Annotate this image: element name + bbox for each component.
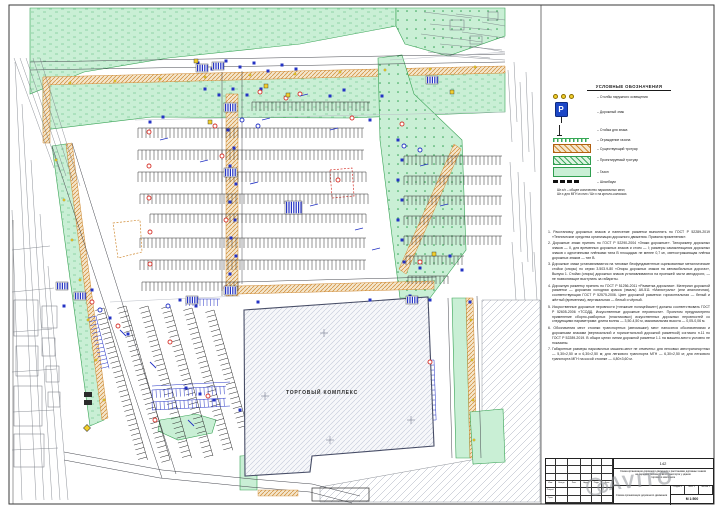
revision-table-cell bbox=[556, 474, 568, 481]
revision-table-cell: Дата bbox=[602, 481, 613, 488]
legend-item: – Проектируемый тротуар bbox=[553, 156, 711, 165]
revision-table-cell bbox=[568, 496, 581, 503]
title-block-main: 142 Схема организации дорожного движения… bbox=[613, 459, 713, 503]
revision-table-cell: Лист bbox=[568, 481, 581, 488]
revision-table-cell bbox=[568, 466, 581, 473]
revision-table-cell bbox=[592, 496, 602, 503]
legend-item-label: – Газон bbox=[593, 170, 609, 174]
revision-table-cell bbox=[592, 466, 602, 473]
title-block-revision-table: Изм.Кол.учЛист№док.Подп.ДатаРазраб.Пров. bbox=[546, 459, 614, 503]
revision-table-cell bbox=[592, 459, 602, 466]
revision-table-cell: Изм. bbox=[546, 481, 556, 488]
revision-table-cell: №док. bbox=[581, 481, 592, 488]
swN-symbol-icon bbox=[553, 156, 593, 165]
legend-item: – Газон bbox=[553, 167, 711, 177]
revision-table-cell bbox=[568, 474, 581, 481]
revision-table-cell bbox=[602, 459, 613, 466]
legend-note-line: Шт.х для МГН из них / Шт.х на кресло-кол… bbox=[557, 192, 711, 196]
legend-item-label: – Столбы наружного освещения bbox=[593, 95, 648, 99]
dots-symbol-icon bbox=[553, 94, 593, 99]
legend-item: – Ограждение газона bbox=[553, 138, 711, 142]
legend-items: – Столбы наружного освещенияP– Дорожный … bbox=[547, 94, 711, 184]
note-paragraph: 7. Габаритные размеры парковочных машино… bbox=[548, 347, 710, 362]
revision-table-cell bbox=[556, 466, 568, 473]
note-paragraph: 3. Дорожные знаки устанавливаются на тип… bbox=[548, 262, 710, 282]
revision-table-cell: Подп. bbox=[592, 481, 602, 488]
title-block-bottom: Схема организации дорожного движения Ста… bbox=[613, 486, 713, 505]
revision-table-cell bbox=[581, 488, 592, 495]
legend-item-label: – Стойка для знака bbox=[593, 128, 627, 132]
note-paragraph: 4. Дорожную разметку принять по ГОСТ Р 5… bbox=[548, 284, 710, 304]
revision-table-cell bbox=[602, 488, 613, 495]
revision-table-cell bbox=[602, 474, 613, 481]
general-notes: 1. Расстановку дорожных знаков и нанесен… bbox=[548, 230, 710, 363]
fence-symbol-icon bbox=[553, 138, 593, 142]
revision-table-cell bbox=[568, 488, 581, 495]
revision-table-cell bbox=[556, 459, 568, 466]
drawing-sheet: ТОРГОВЫЙ КОМПЛЕКС УСЛОВНЫЕ ОБОЗНАЧЕНИЯ –… bbox=[0, 0, 720, 511]
legend-item-label: – Проектируемый тротуар bbox=[593, 158, 638, 162]
revision-table-cell: Разраб. bbox=[546, 488, 556, 495]
revision-table-cell bbox=[592, 474, 602, 481]
revision-table-cell bbox=[592, 488, 602, 495]
revision-table-cell bbox=[556, 496, 568, 503]
note-paragraph: 2. Дорожные знаки принять по ГОСТ Р 5229… bbox=[548, 241, 710, 261]
building-label: ТОРГОВЫЙ КОМПЛЕКС bbox=[286, 388, 358, 396]
revision-table-cell bbox=[581, 466, 592, 473]
barrier-symbol-icon bbox=[553, 180, 593, 183]
revision-table-cell bbox=[546, 466, 556, 473]
drawing-scale: М 1:500 bbox=[671, 494, 713, 505]
post-symbol-icon bbox=[553, 125, 593, 135]
psign-symbol-icon: P bbox=[553, 102, 593, 123]
revision-table-cell bbox=[602, 466, 613, 473]
revision-table-cell bbox=[568, 459, 581, 466]
document-number: 142 bbox=[613, 459, 713, 469]
revision-table-cell bbox=[546, 459, 556, 466]
revision-table-cell: Кол.уч bbox=[556, 481, 568, 488]
swE-symbol-icon bbox=[553, 144, 593, 153]
revision-table-cell bbox=[581, 474, 592, 481]
note-paragraph: 1. Расстановку дорожных знаков и нанесен… bbox=[548, 230, 710, 240]
legend-item: – Стойка для знака bbox=[553, 125, 711, 135]
legend-item: – Существующий тротуар bbox=[553, 144, 711, 153]
title-block: Изм.Кол.учЛист№док.Подп.ДатаРазраб.Пров.… bbox=[545, 458, 714, 504]
legend-note: Шт.х/х – общее количество парковочных ме… bbox=[557, 188, 711, 196]
revision-table-cell bbox=[546, 474, 556, 481]
building-footprint bbox=[244, 297, 434, 476]
legend-item: – Столбы наружного освещения bbox=[553, 94, 711, 99]
legend-item-label: – Шлагбаум bbox=[593, 180, 616, 184]
legend-item-label: – Дорожный знак bbox=[593, 110, 624, 114]
revision-table-cell bbox=[581, 496, 592, 503]
project-description-line: торгового комплекса bbox=[613, 476, 713, 479]
legend: УСЛОВНЫЕ ОБОЗНАЧЕНИЯ – Столбы наружного … bbox=[547, 84, 711, 196]
stage-cell: Листов 1 bbox=[699, 486, 713, 494]
legend-title-underline bbox=[587, 90, 671, 91]
revision-table-cell bbox=[581, 459, 592, 466]
building-layer: ТОРГОВЫЙ КОМПЛЕКС bbox=[244, 297, 434, 476]
legend-item-label: – Ограждение газона bbox=[593, 138, 630, 142]
revision-table-cell: Пров. bbox=[546, 496, 556, 503]
revision-table-cell bbox=[556, 488, 568, 495]
project-description: Схема организации дорожного движения и р… bbox=[613, 469, 713, 486]
note-paragraph: 5. Искусственные дорожные неровности («л… bbox=[548, 305, 710, 325]
legend-title: УСЛОВНЫЕ ОБОЗНАЧЕНИЯ bbox=[547, 84, 711, 89]
legend-item: P– Дорожный знак bbox=[553, 102, 711, 123]
revision-table-cell bbox=[602, 496, 613, 503]
lawn-symbol-icon bbox=[553, 167, 593, 177]
parking-sign-icon: P bbox=[555, 102, 568, 117]
stage-cell: Лист 1 bbox=[685, 486, 699, 494]
legend-item-label: – Существующий тротуар bbox=[593, 147, 638, 151]
legend-item: – Шлагбаум bbox=[553, 180, 711, 184]
note-paragraph: 6. Обозначения мест стоянки транспортных… bbox=[548, 326, 710, 346]
drawing-title: Схема организации дорожного движения bbox=[613, 486, 671, 505]
stage-cell: Стадия Р bbox=[671, 486, 685, 494]
